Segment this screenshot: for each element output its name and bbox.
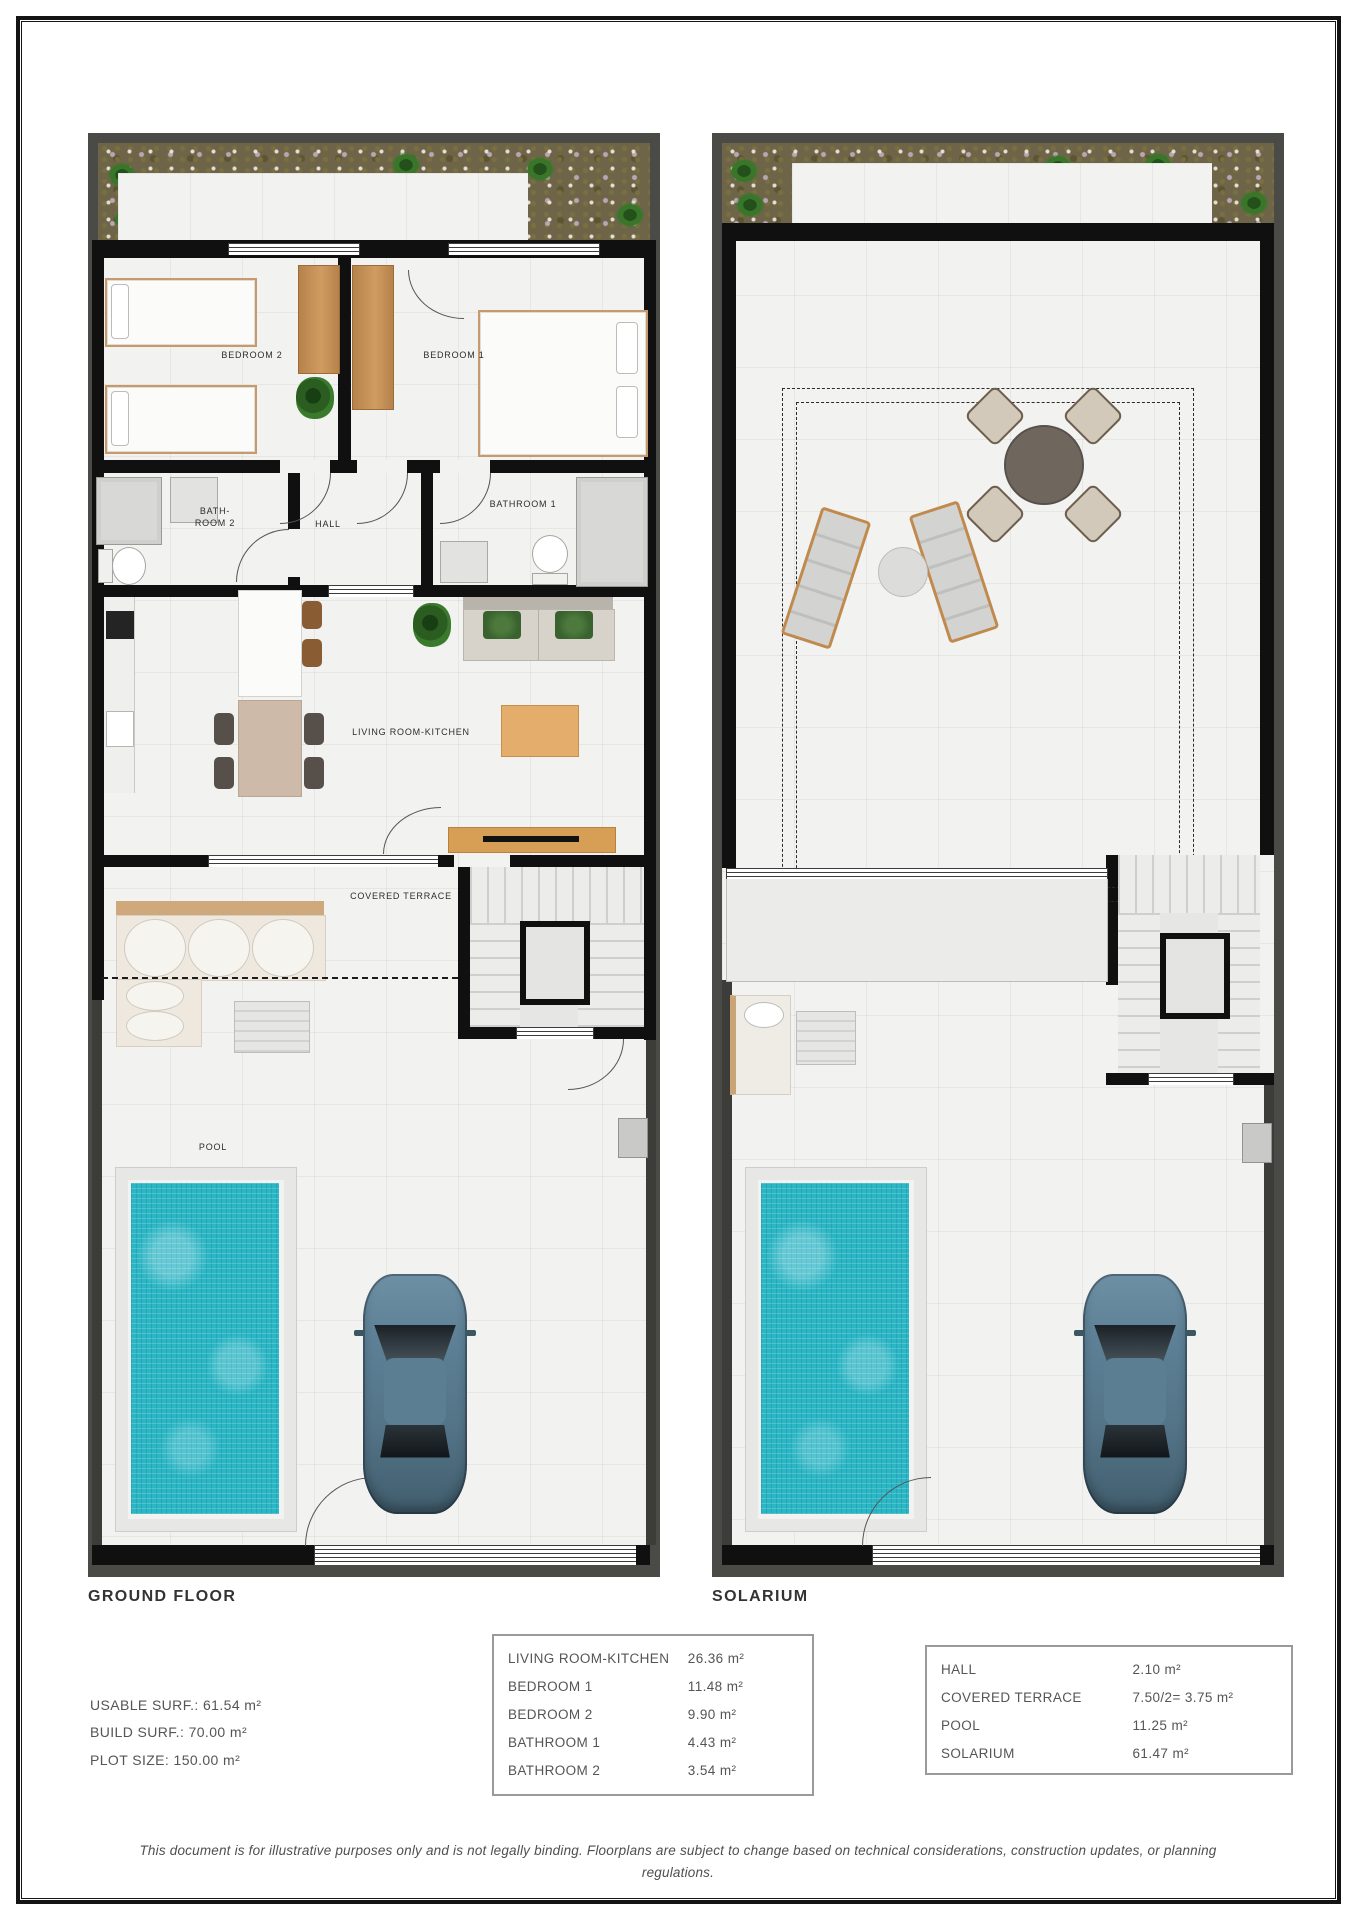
solarium-title: SOLARIUM <box>712 1588 809 1606</box>
cooktop <box>106 611 134 639</box>
room-label-hall: HALL <box>288 519 368 531</box>
exterior-areas-table: HALL2.10 m² COVERED TERRACE7.50/2= 3.75 … <box>925 1645 1293 1775</box>
car-rear-window <box>1100 1425 1170 1458</box>
table-row: BATHROOM 14.43 m² <box>508 1729 798 1757</box>
single-bed <box>105 385 257 454</box>
room-label-pool: POOL <box>163 1142 263 1154</box>
single-bed <box>105 278 257 347</box>
plant-icon <box>1238 189 1270 217</box>
plant-icon <box>413 603 451 647</box>
chair <box>214 713 234 745</box>
window <box>1148 1073 1234 1085</box>
room-label-living: LIVING ROOM-KITCHEN <box>311 727 511 739</box>
room-label-bedroom1: BEDROOM 1 <box>394 350 514 362</box>
lounger <box>730 995 791 1095</box>
table-row: HALL2.10 m² <box>941 1656 1277 1684</box>
round-table <box>1004 425 1084 505</box>
window <box>328 585 414 597</box>
window <box>516 1027 594 1039</box>
ground-floor-plan: BEDROOM 2 BEDROOM 1 BATH- ROOM 2 HALL BA… <box>88 133 660 1577</box>
kitchen-sink <box>106 711 134 747</box>
car <box>355 1270 475 1520</box>
plant-icon <box>614 201 646 229</box>
plant-icon <box>734 191 766 219</box>
roof-opening <box>726 868 1108 982</box>
window <box>448 243 600 255</box>
table-row: BEDROOM 111.48 m² <box>508 1673 798 1701</box>
room-label-bedroom2: BEDROOM 2 <box>192 350 312 362</box>
outdoor-unit <box>1242 1123 1272 1163</box>
table-row: BATHROOM 23.54 m² <box>508 1757 798 1785</box>
surface-summary: USABLE SURF.: 61.54 m² BUILD SURF.: 70.0… <box>90 1692 261 1774</box>
terrace-boundary-dashed <box>102 977 458 979</box>
coffee-table <box>501 705 579 757</box>
sliding-gate <box>872 1545 1262 1565</box>
toilet <box>98 549 113 583</box>
ground-floor-title: GROUND FLOOR <box>88 1588 236 1606</box>
solarium-plan <box>712 133 1284 1577</box>
car-rear-window <box>380 1425 450 1458</box>
shower <box>96 477 162 545</box>
sliding-window <box>208 855 440 867</box>
car <box>1075 1270 1195 1520</box>
sofa-pillow <box>483 611 521 639</box>
room-label-bathroom1: BATHROOM 1 <box>463 499 583 511</box>
patio-strip <box>118 173 528 240</box>
pillow <box>744 1002 784 1028</box>
sliding-window <box>726 868 1108 879</box>
side-table <box>878 547 928 597</box>
pool <box>131 1183 279 1514</box>
chair <box>214 757 234 789</box>
car-windshield <box>374 1325 456 1363</box>
window <box>228 243 360 255</box>
pool <box>761 1183 909 1514</box>
room-areas-table: LIVING ROOM-KITCHEN26.36 m² BEDROOM 111.… <box>492 1634 814 1796</box>
outdoor-unit <box>618 1118 648 1158</box>
summary-row: USABLE SURF.: 61.54 m² <box>90 1692 261 1719</box>
shower <box>576 477 648 587</box>
double-bed <box>478 310 648 457</box>
chair <box>304 757 324 789</box>
wardrobe <box>352 265 394 410</box>
table-row: POOL11.25 m² <box>941 1712 1277 1740</box>
stool <box>302 601 322 629</box>
pillow <box>616 322 638 374</box>
sofa-pillow <box>555 611 593 639</box>
outdoor-table <box>796 1011 856 1065</box>
plant-icon <box>524 155 556 183</box>
plant-icon <box>728 157 760 185</box>
table-row: LIVING ROOM-KITCHEN26.36 m² <box>508 1645 798 1673</box>
terrace-table <box>234 1001 310 1053</box>
disclaimer-text: This document is for illustrative purpos… <box>103 1840 1253 1885</box>
tv <box>483 836 579 842</box>
summary-row: PLOT SIZE: 150.00 m² <box>90 1747 261 1774</box>
tv-console <box>448 827 616 853</box>
pillow <box>616 386 638 438</box>
table-row: COVERED TERRACE7.50/2= 3.75 m² <box>941 1684 1277 1712</box>
stool <box>302 639 322 667</box>
room-label-bathroom2: BATH- ROOM 2 <box>175 506 255 529</box>
pillow <box>111 284 129 339</box>
car-windshield <box>1094 1325 1176 1363</box>
sink <box>440 541 488 583</box>
sliding-gate <box>314 1545 640 1565</box>
kitchen-island <box>238 590 302 697</box>
patio-strip <box>792 163 1212 223</box>
table-row: SOLARIUM61.47 m² <box>941 1740 1277 1768</box>
toilet <box>532 535 568 573</box>
toilet <box>532 573 568 585</box>
pillow <box>111 391 129 446</box>
solarium-dashed-inner <box>796 402 1180 888</box>
summary-row: BUILD SURF.: 70.00 m² <box>90 1719 261 1746</box>
dining-table <box>238 700 302 797</box>
room-label-terrace: COVERED TERRACE <box>301 891 501 903</box>
plant-icon <box>296 377 334 419</box>
table-row: BEDROOM 29.90 m² <box>508 1701 798 1729</box>
toilet <box>112 547 146 585</box>
